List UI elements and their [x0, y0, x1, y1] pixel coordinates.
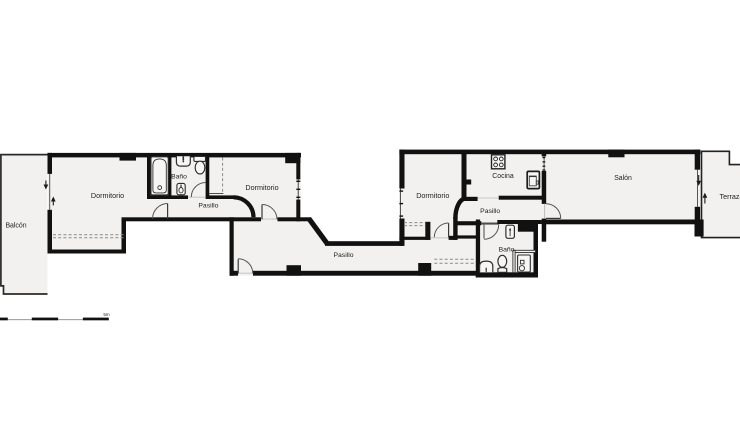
svg-text:Cocina: Cocina: [492, 173, 514, 180]
svg-text:Baño: Baño: [171, 174, 187, 181]
svg-text:Balcón: Balcón: [5, 223, 26, 230]
svg-text:5m: 5m: [103, 312, 110, 317]
svg-text:Dormitorio: Dormitorio: [416, 191, 449, 200]
svg-text:Terraza: Terraza: [720, 192, 740, 201]
svg-text:Pasillo: Pasillo: [480, 208, 500, 215]
svg-text:Pasillo: Pasillo: [198, 203, 218, 210]
svg-text:Baño: Baño: [499, 247, 515, 254]
svg-text:Salón: Salón: [614, 175, 632, 182]
svg-text:Pasillo: Pasillo: [333, 252, 353, 259]
svg-text:Dormitorio: Dormitorio: [91, 191, 124, 200]
svg-text:Dormitorio: Dormitorio: [245, 183, 278, 192]
